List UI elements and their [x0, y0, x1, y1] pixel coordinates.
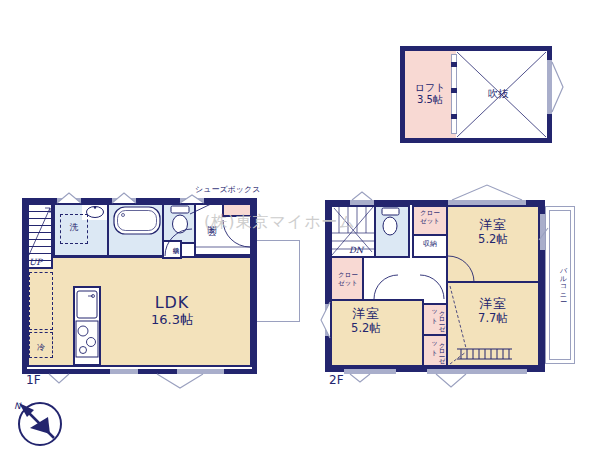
bedroom-br-size: 7.7帖 — [466, 312, 520, 326]
loft-ladder-rung — [451, 114, 457, 119]
loft-room-label: ロフト 3.5帖 — [402, 82, 458, 106]
compass-north-label: N — [14, 401, 22, 411]
closet-mid-2-label: クローゼット — [425, 338, 445, 365]
compass-icon: N — [14, 401, 61, 445]
bedroom-tr-name: 洋室 — [464, 217, 522, 233]
bedroom-bl-name: 洋室 — [340, 306, 392, 322]
entrance-porch — [252, 240, 300, 322]
bedroom-tr-label: 洋室 5.2帖 — [464, 217, 522, 246]
balcony-label: バルコニー — [552, 247, 567, 313]
storage-1f-label: 収納 — [166, 242, 179, 259]
bedroom-br-label: 洋室 7.7帖 — [466, 296, 520, 325]
closet-left-label: クローゼット — [337, 271, 359, 288]
shoebox-label: シューズボックス — [195, 185, 260, 195]
loft-ladder-rung — [451, 62, 457, 67]
bedroom-tr-size: 5.2帖 — [464, 233, 522, 247]
void-label: 吹抜 — [477, 87, 519, 100]
toilet-room-1f — [162, 203, 196, 244]
washer-label: 洗 — [60, 222, 88, 232]
floor2-label: 2F — [329, 373, 344, 387]
loft-size: 3.5帖 — [402, 94, 458, 106]
stairs-up-label: UP — [29, 257, 42, 267]
storage-2f-label: 収納 — [412, 240, 448, 248]
closet-mid-1-label: クローゼット — [425, 306, 445, 333]
kitchen-counter — [73, 286, 101, 366]
floor-plan-canvas: (株)東京マイホーム ロフト 3.5帖 吹抜 シューズボックス 洗 UP 収納 … — [0, 0, 600, 450]
bedroom-br-name: 洋室 — [466, 296, 520, 312]
closet-top-label: クローゼット — [419, 209, 441, 226]
fridge-label: 冷 — [31, 343, 51, 353]
stairs-dn-label: DN — [349, 245, 363, 255]
ldk-label: LDK 16.3帖 — [128, 293, 216, 328]
ldk-size: 16.3帖 — [128, 312, 216, 328]
loft-name: ロフト — [402, 82, 458, 94]
bedroom-bl-label: 洋室 5.2帖 — [340, 306, 392, 335]
watermark-text: (株)東京マイホーム — [204, 212, 356, 233]
bathroom-1f — [107, 203, 164, 257]
pantry-space — [29, 272, 53, 330]
ldk-name: LDK — [128, 293, 216, 312]
floor1-label: 1F — [26, 373, 41, 387]
toilet-room-2f — [374, 205, 410, 258]
bedroom-bl-size: 5.2帖 — [340, 322, 392, 336]
